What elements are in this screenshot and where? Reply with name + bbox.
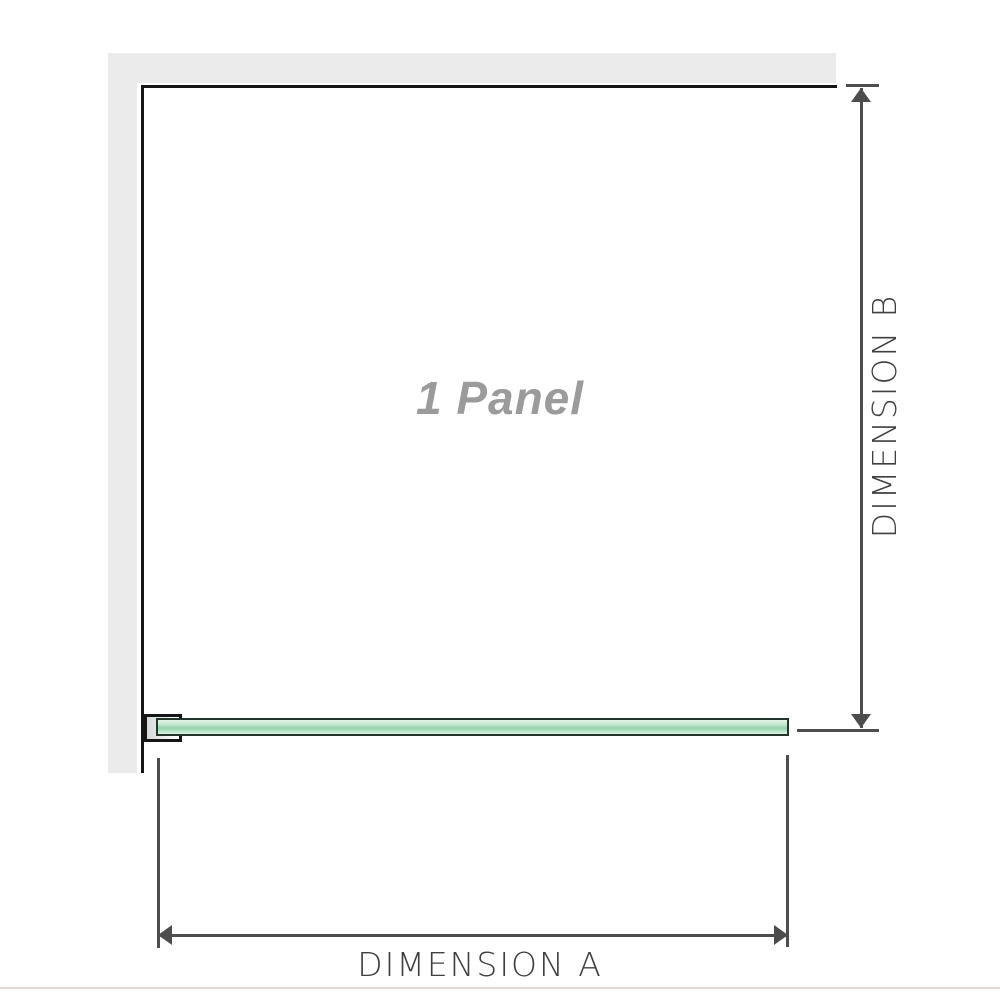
dimension-a-arrow-left-icon bbox=[158, 925, 172, 945]
dimension-b-label: DIMENSION B bbox=[864, 216, 904, 616]
dimension-b-line bbox=[860, 88, 863, 728]
dimension-a-label: DIMENSION A bbox=[280, 944, 680, 984]
dimension-diagram: 1 Panel DIMENSION B DIMENSION A bbox=[0, 0, 1000, 1000]
dimension-b-arrow-up-icon bbox=[851, 88, 871, 102]
dimension-a-line bbox=[158, 934, 788, 937]
dimension-a-left-extension-line bbox=[157, 758, 160, 948]
glass-panel bbox=[156, 718, 789, 736]
wall-edge-left-line bbox=[141, 85, 144, 773]
dimension-b-arrow-down-icon bbox=[851, 714, 871, 728]
image-bottom-edge-line bbox=[0, 987, 1000, 989]
wall-left-strip bbox=[108, 53, 137, 773]
dimension-b-bottom-tick bbox=[797, 729, 879, 732]
dimension-b-top-tick bbox=[846, 84, 879, 87]
wall-edge-top-line bbox=[141, 85, 837, 88]
dimension-a-right-extension-line bbox=[786, 755, 789, 947]
dimension-a-arrow-right-icon bbox=[774, 925, 788, 945]
panel-count-label: 1 Panel bbox=[390, 368, 610, 428]
wall-top-strip bbox=[108, 53, 836, 83]
